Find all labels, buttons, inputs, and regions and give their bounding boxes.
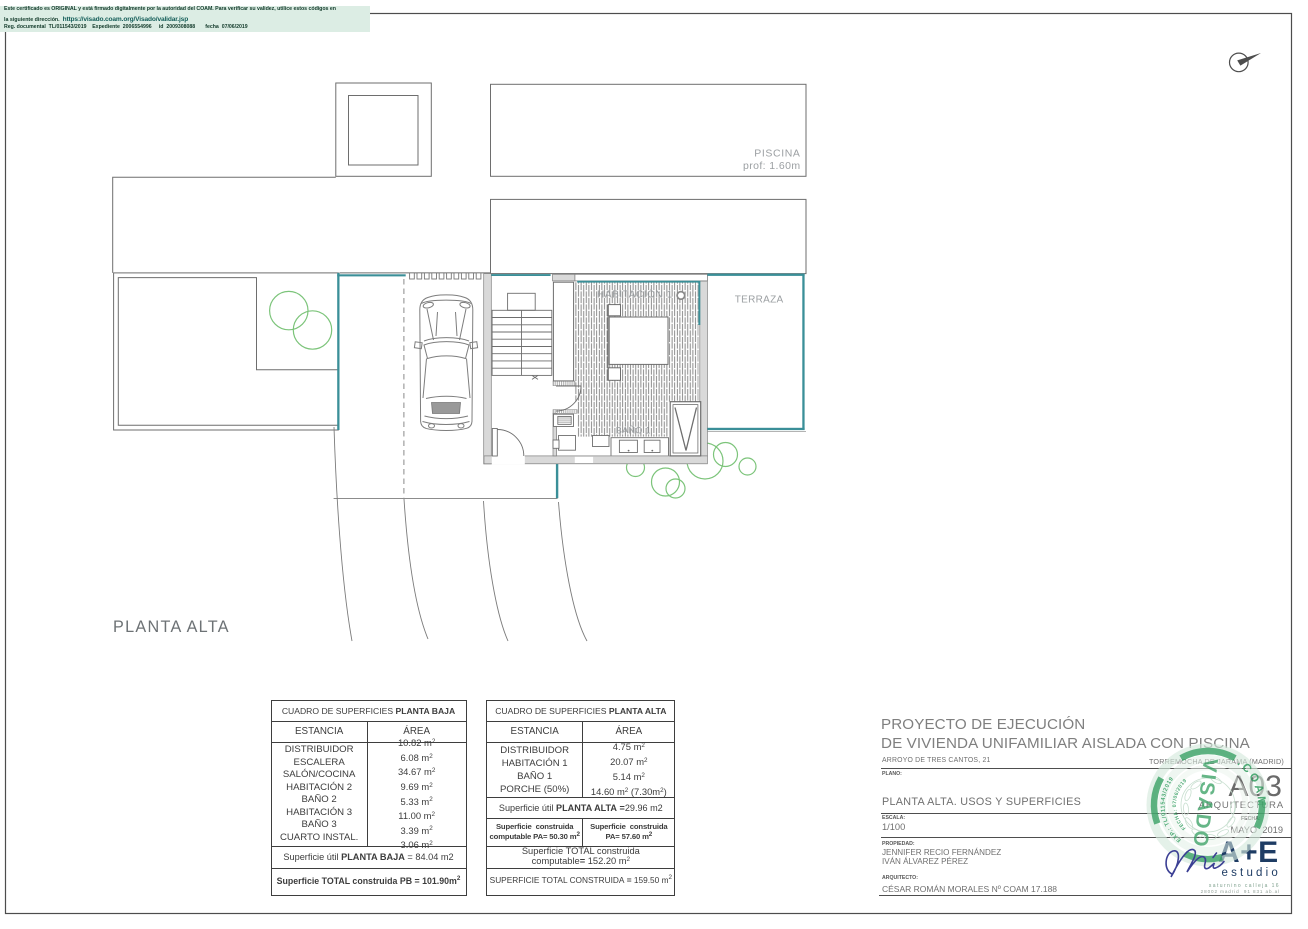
svg-text:TERRAZA: TERRAZA bbox=[735, 294, 784, 305]
svg-text:HABITACIÓN 1: HABITACIÓN 1 bbox=[597, 288, 673, 301]
svg-text:prof: 1.60m: prof: 1.60m bbox=[743, 160, 801, 172]
svg-text:BAÑO 1: BAÑO 1 bbox=[616, 426, 651, 436]
svg-text:PISCINA: PISCINA bbox=[754, 148, 800, 160]
